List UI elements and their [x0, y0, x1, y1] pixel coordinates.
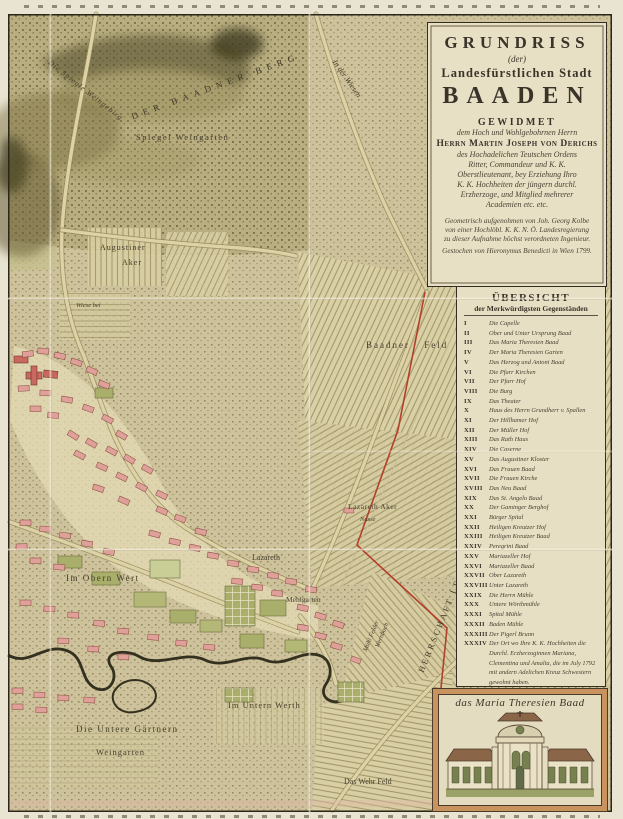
legend-item: XXVI Mariazeller Baad [464, 562, 598, 572]
scanned-map-sheet: { "colors":{"paper":"#e9e3d0","panel":"#… [0, 0, 623, 819]
legend-item-label: Das St. Angelo Baad [489, 494, 598, 504]
legend-item: IX Das Theater [464, 397, 598, 407]
legend-item: XXI Bürger Spital [464, 513, 598, 523]
dedication-heading: GEWIDMET [428, 117, 606, 128]
legend-item-numeral: XXVII [464, 571, 489, 581]
legend-item-label: Die Herrn Mühle [489, 591, 598, 601]
legend-item-numeral: XIX [464, 494, 489, 504]
legend-item-label: Die Burg [489, 387, 598, 397]
legend-item-numeral: XXXIII [464, 630, 489, 640]
legend-item-numeral: XVIII [464, 484, 489, 494]
legend-item-numeral: XIV [464, 445, 489, 455]
legend-item: XV Das Augustiner Kloster [464, 455, 598, 465]
legend-item-label: Der Pfarr Hof [489, 377, 598, 387]
legend-item: XXXII Baden Mühle [464, 620, 598, 630]
legend-item: XXVIII Unter Lazareth [464, 581, 598, 591]
dedication-text: des Hochadelichen Teutschen OrdensRitter… [428, 150, 606, 210]
legend-item-label: Heiligen Kreutzer Hof [489, 523, 598, 533]
legend-item-label: Das Neu Baad [489, 484, 598, 494]
legend-item: VII Der Pfarr Hof [464, 377, 598, 387]
dedicatee-name: Herrn Martin Joseph von Derichs [428, 139, 606, 149]
legend-item-label: Haus des Herrn Grundherr v. Spallen [489, 406, 598, 416]
map-subtitle: Landesfürstlichen Stadt [428, 66, 606, 81]
dedication-line: K. K. Hochheiten der jüngern durchl. [428, 180, 606, 190]
legend-item-numeral: VIII [464, 387, 489, 397]
legend-item-label: Spital Mühle [489, 610, 598, 620]
legend-item: XI Der Hillhamer Hof [464, 416, 598, 426]
legend-item-numeral: XXXI [464, 610, 489, 620]
surveyor-line: Geometrisch aufgenohmen von Joh. Georg K… [428, 216, 606, 225]
legend-panel: ÜBERSICHT der Merkwürdigsten Gegenstände… [456, 287, 606, 687]
legend-item-numeral: IX [464, 397, 489, 407]
legend-item: III Das Maria Theresien Baad [464, 338, 598, 348]
legend-item: XVII Die Frauen Kirche [464, 474, 598, 484]
legend-item: XXV Mariazeller Hof [464, 552, 598, 562]
legend-item-numeral: XX [464, 503, 489, 513]
legend-item-label: Das Maria Theresien Baad [489, 338, 598, 348]
legend-item-label: Der Pigerl Brunn [489, 630, 598, 640]
legend-item: XXXI Spital Mühle [464, 610, 598, 620]
legend-item-numeral: XI [464, 416, 489, 426]
legend-item-label: Das Herzog und Antoni Baad [489, 358, 598, 368]
legend-item: II Ober und Unter Ursprung Baad [464, 329, 598, 339]
legend-item-numeral: XXIII [464, 532, 489, 542]
map-title-der: (der) [428, 54, 606, 64]
legend-item: VIII Die Burg [464, 387, 598, 397]
legend-item: V Das Herzog und Antoni Baad [464, 358, 598, 368]
legend-item-label: Das Augustiner Kloster [489, 455, 598, 465]
legend-item-numeral: II [464, 329, 489, 339]
maria-theresien-baad-illustration [438, 709, 602, 803]
legend-item-numeral: XXX [464, 600, 489, 610]
legend-item: XXXIV Der Ort wo Ihre K. K. Hochheiten d… [464, 639, 598, 687]
dedication-line: Oberstlieutenant, bey Erziehung Ihro [428, 170, 606, 180]
legend-item-label: Mariazeller Baad [489, 562, 598, 572]
legend-item: XXII Heiligen Kreutzer Hof [464, 523, 598, 533]
vignette-panel: das Maria Theresien Baad [432, 688, 608, 812]
legend-item-numeral: XV [464, 455, 489, 465]
map-title: GRUNDRISS [428, 33, 606, 53]
legend-item-label: Der Ort wo Ihre K. K. Hochheiten die Dur… [489, 639, 598, 687]
legend-item-label: Ober Lazareth [489, 571, 598, 581]
engraver-line: Gestochen von Hieronymus Benedicti in Wi… [428, 247, 606, 255]
legend-item-label: Das Theater [489, 397, 598, 407]
legend-item: XIX Das St. Angelo Baad [464, 494, 598, 504]
vignette-caption: das Maria Theresien Baad [433, 697, 607, 709]
legend-item-label: Das Frauen Baad [489, 465, 598, 475]
legend-item: XXX Untere Wörthmühle [464, 600, 598, 610]
map-city-name: BAADEN [428, 83, 606, 110]
legend-item-label: Das Rath Haus [489, 435, 598, 445]
legend-item-label: Die Pfarr Kirchen [489, 368, 598, 378]
legend-item-numeral: XXII [464, 523, 489, 533]
legend-item: VI Die Pfarr Kirchen [464, 368, 598, 378]
legend-item-numeral: XII [464, 426, 489, 436]
legend-item: XIII Das Rath Haus [464, 435, 598, 445]
legend-item-label: Bürger Spital [489, 513, 598, 523]
surveyor-text: Geometrisch aufgenohmen von Joh. Georg K… [428, 216, 606, 243]
surveyor-line: zu dieser Aufnahme höchst verordneten In… [428, 234, 606, 243]
legend-item-label: Baden Mühle [489, 620, 598, 630]
legend-item: X Haus des Herrn Grundherr v. Spallen [464, 406, 598, 416]
legend-item-numeral: VI [464, 368, 489, 378]
legend-item-numeral: XVI [464, 465, 489, 475]
legend-item: XXIX Die Herrn Mühle [464, 591, 598, 601]
legend-item: XVIII Das Neu Baad [464, 484, 598, 494]
surveyor-line: von einer Hochlöbl. K. K. N. Ö. Landesre… [428, 225, 606, 234]
legend-item-label: Peregrini Baad [489, 542, 598, 552]
legend-item-label: Die Frauen Kirche [489, 474, 598, 484]
legend-item-label: Ober und Unter Ursprung Baad [489, 329, 598, 339]
legend-item-label: Der Hillhamer Hof [489, 416, 598, 426]
legend-item-numeral: XXVIII [464, 581, 489, 591]
legend-item-numeral: IV [464, 348, 489, 358]
legend-item: XXVII Ober Lazareth [464, 571, 598, 581]
legend-item: XXIII Heiligen Kreutzer Baad [464, 532, 598, 542]
legend-item-label: Untere Wörthmühle [489, 600, 598, 610]
legend-item-numeral: VII [464, 377, 489, 387]
dedication-line: Erzherzoge, und Mitglied mehrerer [428, 190, 606, 200]
title-cartouche: GRUNDRISS (der) Landesfürstlichen Stadt … [427, 22, 607, 287]
legend-item-label: Der Müller Hof [489, 426, 598, 436]
legend-item-label: Die Capelle [489, 319, 598, 329]
legend-item-numeral: V [464, 358, 489, 368]
legend-item: IV Der Maria Theresien Garten [464, 348, 598, 358]
legend-item: XX Der Gaminger Berghof [464, 503, 598, 513]
legend-item-numeral: XXV [464, 552, 489, 562]
legend-item-label: Heiligen Kreutzer Baad [489, 532, 598, 542]
legend-item: XVI Das Frauen Baad [464, 465, 598, 475]
legend-item-label: Der Gaminger Berghof [489, 503, 598, 513]
legend-item-numeral: XVII [464, 474, 489, 484]
legend-item-label: Mariazeller Hof [489, 552, 598, 562]
legend-item: I Die Capelle [464, 319, 598, 329]
legend-item-numeral: XXI [464, 513, 489, 523]
legend-item-numeral: XXIX [464, 591, 489, 601]
legend-item: XXIV Peregrini Baad [464, 542, 598, 552]
legend-item: XII Der Müller Hof [464, 426, 598, 436]
legend-item-label: Die Caserne [489, 445, 598, 455]
legend-item-numeral: XIII [464, 435, 489, 445]
legend-item-numeral: XXVI [464, 562, 489, 572]
legend-item-numeral: XXIV [464, 542, 489, 552]
legend-item-numeral: I [464, 319, 489, 329]
dedication-line: Ritter, Commandeur und K. K. [428, 160, 606, 170]
legend-item: XIV Die Caserne [464, 445, 598, 455]
dedication-line: Academien etc. etc. [428, 200, 606, 210]
dedication-line: dem Hoch und Wohlgebohrnen Herrn [428, 128, 606, 138]
legend-item-label: Unter Lazareth [489, 581, 598, 591]
legend-item-numeral: X [464, 406, 489, 416]
legend-item-label: Der Maria Theresien Garten [489, 348, 598, 358]
legend-subtitle: der Merkwürdigsten Gegenständen [464, 304, 598, 316]
legend-item-numeral: XXXII [464, 620, 489, 630]
legend-list: I Die Capelle II Ober und Unter Ursprung… [464, 319, 598, 687]
legend-item: XXXIII Der Pigerl Brunn [464, 630, 598, 640]
dedication-line: des Hochadelichen Teutschen Ordens [428, 150, 606, 160]
legend-item-numeral: III [464, 338, 489, 348]
legend-title: ÜBERSICHT [464, 292, 598, 304]
legend-item-numeral: XXXIV [464, 639, 489, 687]
